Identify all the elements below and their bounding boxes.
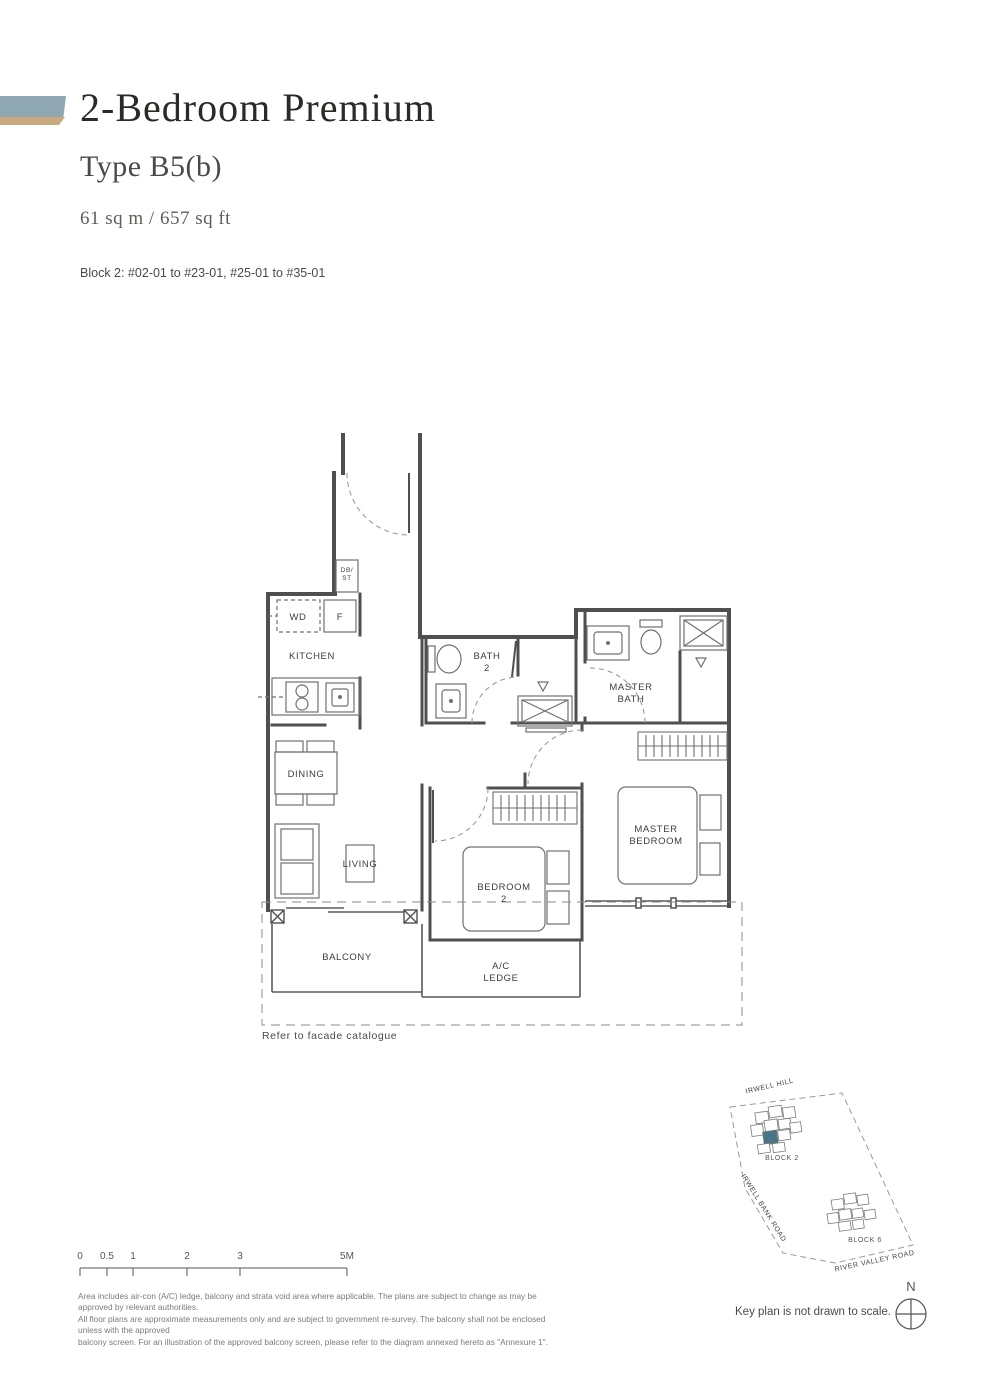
disclaimer-line1: Area includes air-con (A/C) ledge, balco… <box>78 1291 570 1314</box>
shower-head-symbol <box>538 682 548 691</box>
key-plan: IRWELL HILL IRWELL BANK ROAD RIVER VALLE… <box>715 1062 945 1277</box>
scale-bar: 0 0.5 1 2 3 5M <box>70 1246 370 1282</box>
master-toilet-icon <box>640 620 662 627</box>
disclaimer-line3: balcony screen. For an illustration of t… <box>78 1337 570 1348</box>
label-balcony: BALCONY <box>322 952 372 963</box>
facade-note: Refer to facade catalogue <box>262 1030 397 1042</box>
label-ac-ledge-1: A/C <box>492 961 510 972</box>
label-bath2-1: BATH <box>473 651 500 662</box>
master-bath-fixtures <box>587 616 727 667</box>
kitchen-fixtures <box>258 560 360 715</box>
block2-label: BLOCK 2 <box>765 1155 799 1162</box>
floor-plan: DB/ ST WD F KITCHEN DINING LIVING BATH 2… <box>250 420 750 1050</box>
label-master-bedroom-2: BEDROOM <box>629 836 682 847</box>
disclaimer: Area includes air-con (A/C) ledge, balco… <box>78 1291 570 1348</box>
scale-tick-3: 3 <box>237 1251 243 1262</box>
label-kitchen: KITCHEN <box>289 651 335 662</box>
page-title: 2-Bedroom Premium <box>80 84 436 131</box>
scale-tick-1: 1 <box>130 1251 136 1262</box>
scale-tick-0: 0 <box>77 1251 83 1262</box>
label-master-bath-2: BATH <box>617 694 644 705</box>
scale-tick-5m: 5M <box>340 1251 354 1262</box>
beds <box>463 787 721 931</box>
label-ac-ledge-2: LEDGE <box>483 973 518 984</box>
compass-n-label: N <box>906 1279 915 1294</box>
label-master-bedroom-1: MASTER <box>634 824 677 835</box>
wardrobes <box>493 732 727 824</box>
label-dining: DINING <box>288 769 325 780</box>
keyplan-note: Key plan is not drawn to scale. <box>735 1306 891 1318</box>
road-irwell-hill: IRWELL HILL <box>745 1078 794 1096</box>
toilet-icon <box>428 646 435 672</box>
scale-tick-05: 0.5 <box>100 1251 114 1262</box>
label-st: ST <box>342 575 352 582</box>
scale-tick-2: 2 <box>184 1251 190 1262</box>
label-master-bath-1: MASTER <box>609 682 652 693</box>
unit-area: 61 sq m / 657 sq ft <box>80 208 231 230</box>
label-bedroom2-2: 2 <box>501 894 507 905</box>
block-units-info: Block 2: #02-01 to #23-01, #25-01 to #35… <box>80 266 325 280</box>
road-irwell-bank: IRWELL BANK ROAD <box>740 1173 788 1243</box>
label-bath2-2: 2 <box>484 663 490 674</box>
label-db: DB/ <box>341 567 354 574</box>
block6-cluster <box>825 1190 878 1232</box>
sofa-icon <box>275 824 319 898</box>
road-river-valley: RIVER VALLEY ROAD <box>834 1250 915 1274</box>
master-shower-head-symbol <box>696 658 706 667</box>
block2-cluster <box>748 1103 804 1156</box>
highlighted-unit <box>763 1130 779 1145</box>
label-bedroom2-1: BEDROOM <box>477 882 530 893</box>
accent-bar <box>0 96 68 126</box>
unit-type: Type B5(b) <box>80 150 222 184</box>
floorplan-page: 2-Bedroom Premium Type B5(b) 61 sq m / 6… <box>0 0 1000 1400</box>
block6-label: BLOCK 6 <box>848 1237 882 1244</box>
label-living: LIVING <box>343 859 378 870</box>
disclaimer-line2: All floor plans are approximate measurem… <box>78 1314 570 1337</box>
accent-bar-gold <box>0 117 67 125</box>
label-fridge: F <box>337 612 343 623</box>
accent-bar-blue <box>0 96 66 117</box>
label-wd: WD <box>289 612 306 623</box>
